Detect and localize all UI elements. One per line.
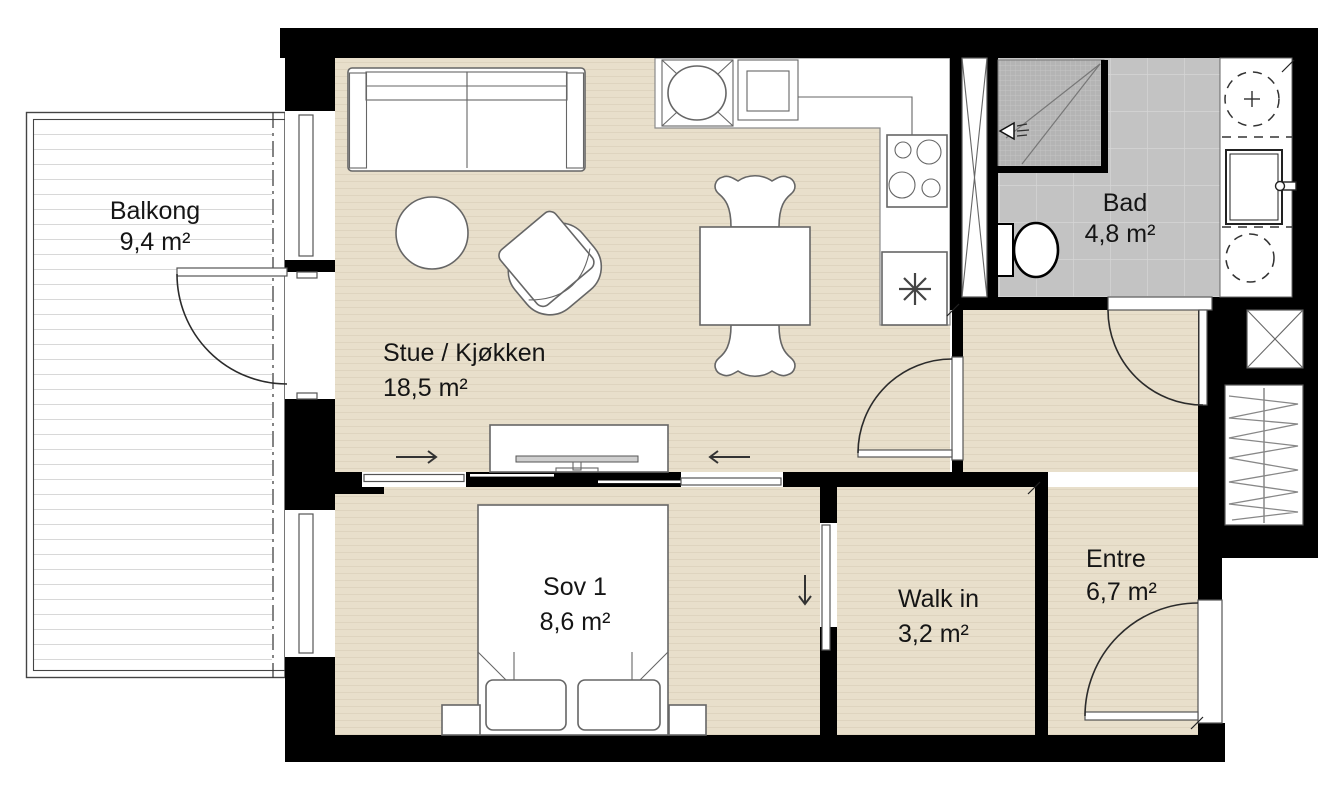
bath-fixture-strip (1220, 58, 1296, 297)
dining-table (700, 227, 810, 325)
entre-floor-lower (1048, 487, 1198, 735)
balkong-area: 9,4 m² (120, 228, 191, 256)
toilet (997, 223, 1058, 277)
partition-wall-west-end (335, 472, 362, 487)
nightstand-left (442, 705, 480, 735)
sofa (348, 68, 585, 171)
tv (516, 456, 638, 462)
door-leaf (1199, 310, 1207, 405)
balcony-door-leaf (177, 268, 287, 276)
stue-label: Stue / Kjøkken (383, 339, 546, 367)
walkin-label: Walk in (898, 585, 979, 613)
duct-shaft-entre (1247, 310, 1303, 368)
exterior-wall-west (285, 58, 335, 111)
tv-bench (490, 425, 668, 472)
exterior-wall-north (280, 28, 1318, 58)
sliding-panel-left (364, 475, 464, 482)
bad-area: 4,8 m² (1085, 220, 1156, 248)
entre-label: Entre (1086, 545, 1146, 573)
bathroom-south-wall (950, 297, 1108, 310)
coffee-table (396, 197, 468, 269)
sov1-area: 8,6 m² (540, 608, 611, 636)
floor-plan: Balkong 9,4 m² Stue / Kjøkken 18,5 m² Ba… (0, 0, 1344, 795)
exterior-wall-south (285, 735, 1225, 762)
sov1-label: Sov 1 (543, 573, 607, 601)
cooktop (887, 135, 947, 207)
bad-label: Bad (1103, 189, 1147, 217)
walkin-west-wall (820, 472, 837, 523)
duct-shaft-kitchen (962, 58, 987, 297)
window-bedroom (285, 510, 335, 657)
floor-plan-svg: Balkong 9,4 m² Stue / Kjøkken 18,5 m² Ba… (0, 0, 1344, 795)
shower (996, 60, 1108, 173)
entre-west-wall (1035, 487, 1048, 735)
pillow-right (578, 680, 660, 730)
exterior-wall-east (1292, 28, 1318, 297)
walkin-north-wall (837, 472, 1048, 487)
kitchen-sink (662, 60, 733, 126)
kitchen-east-wall (950, 58, 962, 310)
partition-stub (335, 487, 384, 494)
entre-floor-upper (963, 310, 1198, 472)
sliding-panel-right (681, 478, 781, 485)
balkong-label: Balkong (110, 197, 200, 225)
living-entre-wall (952, 310, 963, 357)
entre-area: 6,7 m² (1086, 578, 1157, 606)
door-leaf (1085, 712, 1198, 720)
walkin-area: 3,2 m² (898, 620, 969, 648)
fridge (882, 252, 947, 325)
window-living-1 (285, 111, 335, 260)
door-leaf (858, 450, 952, 457)
pillow-left (486, 680, 566, 730)
stue-area: 18,5 m² (383, 374, 468, 402)
nightstand-right (669, 705, 706, 735)
wardrobe (1225, 385, 1303, 525)
